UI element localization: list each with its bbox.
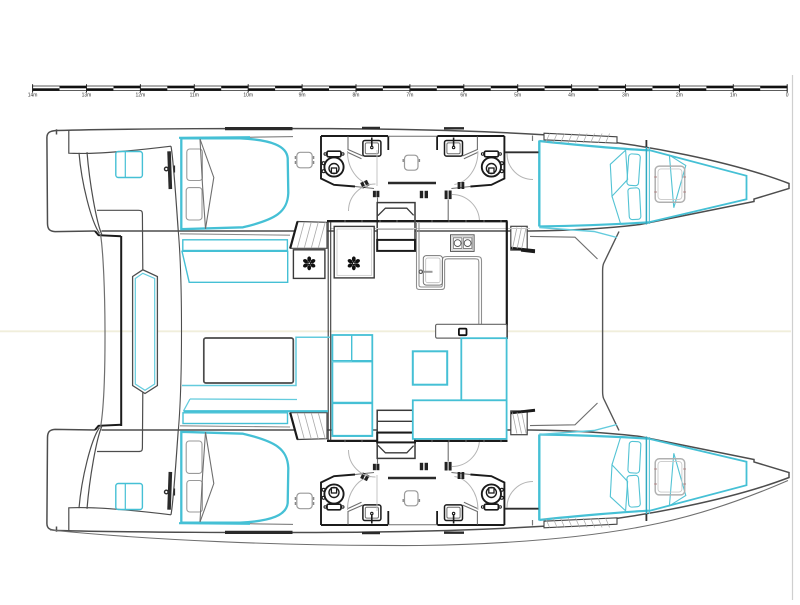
svg-text:10m: 10m (243, 92, 253, 98)
svg-text:13m: 13m (82, 92, 92, 98)
svg-text:4m: 4m (568, 92, 575, 98)
svg-text:8m: 8m (353, 92, 360, 98)
svg-text:1m: 1m (730, 92, 737, 98)
svg-text:2m: 2m (676, 92, 683, 98)
svg-text:9m: 9m (299, 92, 306, 98)
svg-text:11m: 11m (190, 92, 199, 98)
svg-text:6m: 6m (460, 92, 467, 98)
svg-text:3m: 3m (622, 92, 629, 98)
svg-text:12m: 12m (136, 92, 146, 98)
svg-text:7m: 7m (406, 92, 413, 98)
svg-text:0: 0 (786, 92, 789, 98)
svg-text:5m: 5m (514, 92, 521, 98)
svg-text:14m: 14m (28, 92, 38, 98)
